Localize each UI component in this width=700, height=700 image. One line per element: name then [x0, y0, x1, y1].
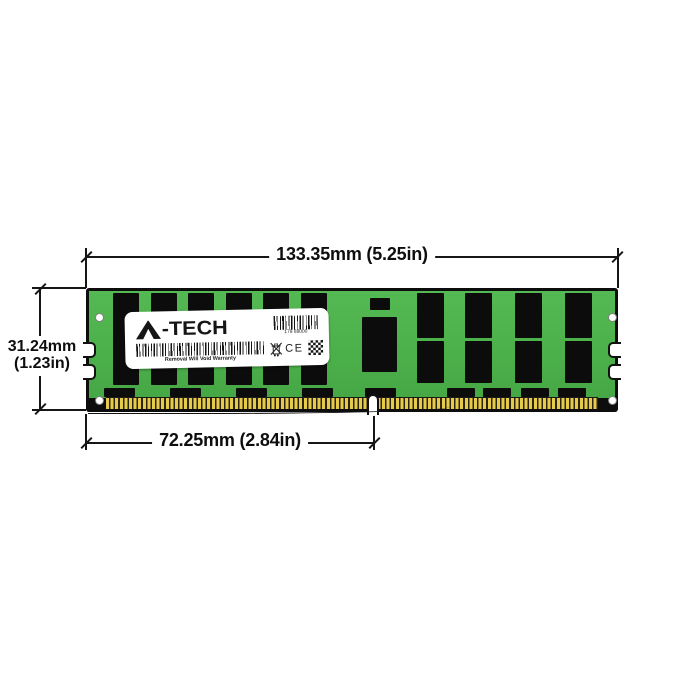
side-notch [608, 364, 621, 380]
weee-bin-icon [270, 342, 282, 357]
qr-code [308, 340, 323, 355]
brand-logo: -TECH [136, 317, 224, 341]
spd-chip [370, 298, 390, 310]
memory-chip [465, 341, 492, 383]
side-notch [83, 342, 96, 358]
serial-barcode [274, 315, 318, 330]
buffer-chip [104, 388, 135, 397]
mounting-hole [95, 313, 104, 322]
memory-chip [515, 341, 542, 383]
mounting-hole [608, 313, 617, 322]
memory-chip [565, 341, 592, 383]
register-chip [362, 317, 397, 372]
buffer-chip [302, 388, 333, 397]
a-tech-logo-a-icon [136, 320, 161, 340]
buffer-chip [236, 388, 267, 397]
buffer-chip [447, 388, 475, 397]
product-label: -TECH 179 88000 Removal Will Void Warran… [124, 308, 329, 369]
memory-chip [515, 293, 542, 338]
module-shadow [88, 407, 450, 414]
ce-mark: CE [285, 342, 304, 354]
memory-chip [565, 293, 592, 338]
buffer-chip [483, 388, 511, 397]
serial-number: 179 88000 [278, 329, 314, 335]
side-notch [83, 364, 96, 380]
height-in: (1.23in) [2, 356, 82, 373]
height-mm: 31.24mm [2, 339, 82, 356]
memory-chip [417, 341, 444, 383]
memory-chip [465, 293, 492, 338]
memory-chip [417, 293, 444, 338]
brand-logo-text: -TECH [162, 317, 228, 341]
mounting-hole [95, 396, 104, 405]
buffer-chip [170, 388, 201, 397]
side-notch [608, 342, 621, 358]
warranty-text: Removal Will Void Warranty [143, 355, 258, 363]
buffer-chip [558, 388, 586, 397]
product-dimension-diagram: 133.35mm (5.25in) 31.24mm (1.23in) [0, 0, 700, 700]
buffer-chip [521, 388, 549, 397]
mounting-hole [608, 396, 617, 405]
main-barcode [136, 341, 264, 357]
height-dimension-label: 31.24mm (1.23in) [0, 336, 84, 376]
width-dimension-label: 133.35mm (5.25in) [269, 245, 435, 264]
notch-offset-dimension-label: 72.25mm (2.84in) [152, 431, 308, 450]
